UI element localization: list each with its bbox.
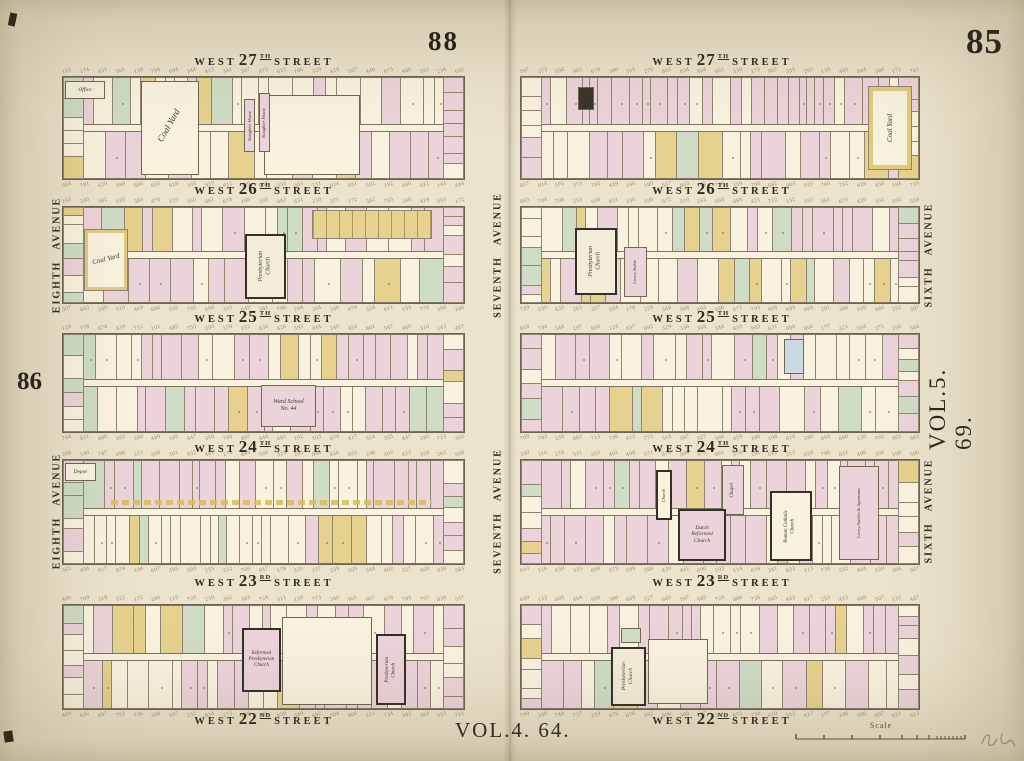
house-number: 736 xyxy=(821,566,832,575)
building-lot xyxy=(63,624,84,635)
lot-mark xyxy=(90,359,92,361)
house-number: 584 xyxy=(61,181,72,190)
building-lot xyxy=(112,661,128,708)
house-number: 766 xyxy=(821,181,832,190)
house-number: 464 xyxy=(573,595,584,604)
building-lot xyxy=(146,606,161,653)
building-lot xyxy=(816,461,828,508)
building-lot xyxy=(751,461,767,508)
building-lot xyxy=(443,664,464,678)
house-number: 262 xyxy=(115,434,126,443)
house-number: 382 xyxy=(365,197,376,206)
building-lot xyxy=(805,387,821,431)
house-number: 479 xyxy=(347,305,358,314)
building-lot xyxy=(213,335,235,379)
street-label-part: WEST xyxy=(652,444,694,455)
building-lot xyxy=(687,461,705,508)
house-number: 639 xyxy=(555,566,566,575)
lot-mark xyxy=(242,359,244,361)
building-lot xyxy=(411,132,429,178)
lot-mark xyxy=(706,232,708,234)
lot-mark xyxy=(246,542,248,544)
avenue-label-right: SIXTH AVENUE xyxy=(924,202,935,307)
building-lot xyxy=(898,224,919,239)
building-lot xyxy=(807,259,815,302)
landmark-label-line: Ward School xyxy=(273,399,303,407)
building-lot xyxy=(750,259,762,302)
building-lot xyxy=(443,551,464,564)
landmark-label: Ward SchoolNo. 44 xyxy=(273,399,303,414)
lot-mark xyxy=(437,157,439,159)
lot-mark xyxy=(736,632,738,634)
building-lot xyxy=(521,248,542,266)
building-lot xyxy=(521,529,542,542)
building-lot xyxy=(767,335,778,379)
building-lot xyxy=(443,77,464,93)
atlas-page: 88 85 86 VOL.5. 69. VOL.4. 64. Scale Off… xyxy=(0,0,1024,761)
building-lot xyxy=(565,516,586,563)
building-lot xyxy=(643,78,651,124)
building-lot xyxy=(443,508,464,523)
house-number: 739 xyxy=(909,181,920,190)
lot-mark xyxy=(750,632,752,634)
building-lot xyxy=(107,516,116,563)
building-lot xyxy=(542,387,563,431)
building-lot xyxy=(898,517,919,532)
building-lot xyxy=(361,78,382,124)
house-number: 914 xyxy=(537,181,548,190)
building-lot xyxy=(303,259,315,302)
house-number: 612 xyxy=(419,181,430,190)
building-lot xyxy=(337,335,349,379)
landmark-label-line: Coal Yard xyxy=(886,114,895,142)
building-lot xyxy=(551,516,565,563)
house-number: 447 xyxy=(909,595,920,604)
house-number: 525 xyxy=(115,197,126,206)
lot-mark xyxy=(650,157,652,159)
house-number: 817 xyxy=(803,595,814,604)
lot-mark xyxy=(139,283,141,285)
building-lot xyxy=(898,239,919,252)
house-number: 186 xyxy=(626,181,637,190)
building-lot xyxy=(443,418,464,432)
house-number: 107 xyxy=(169,711,180,720)
house-number: 485 xyxy=(768,595,779,604)
building-lot xyxy=(542,516,551,563)
house-number: 907 xyxy=(365,595,376,604)
building-lot xyxy=(673,208,685,251)
house-number: 439 xyxy=(115,324,126,333)
lot-mark xyxy=(101,542,103,544)
street-label-part: WEST xyxy=(194,716,236,727)
lot-mark xyxy=(257,542,259,544)
house-number: 518 xyxy=(909,197,920,206)
building-lot xyxy=(746,516,767,563)
street-label-part: STREET xyxy=(732,186,791,197)
house-number: 938 xyxy=(590,197,601,206)
lot-row xyxy=(84,334,445,380)
house-number: 465 xyxy=(839,67,850,76)
lot-mark xyxy=(203,687,205,689)
building-lot xyxy=(719,259,735,302)
building-lot xyxy=(791,259,807,302)
building-lot xyxy=(84,132,106,178)
house-number: 458 xyxy=(874,181,885,190)
building-lot xyxy=(383,387,396,431)
lot-mark xyxy=(659,103,661,105)
building-lot xyxy=(623,132,644,178)
building-lot xyxy=(185,387,196,431)
scan-speck xyxy=(3,730,13,742)
building-lot xyxy=(748,208,758,251)
building-lot xyxy=(219,516,227,563)
house-number: 801 xyxy=(365,324,376,333)
avenue-frontage-lots xyxy=(521,207,542,303)
building-lot xyxy=(751,132,762,178)
lot-mark xyxy=(595,487,597,489)
building-lot xyxy=(117,387,138,431)
house-number: 874 xyxy=(115,566,126,575)
lot-mark xyxy=(621,103,623,105)
building-lot xyxy=(612,78,630,124)
building-lot xyxy=(703,335,712,379)
building-lot xyxy=(63,552,84,564)
building-lot xyxy=(443,523,464,536)
building-lot xyxy=(521,699,542,709)
house-number: 235 xyxy=(555,434,566,443)
house-number: 597 xyxy=(679,595,690,604)
street-label-part: WEST xyxy=(194,314,236,325)
yellow-dashed-line xyxy=(111,500,432,505)
house-number: 729 xyxy=(519,305,530,314)
building-lot xyxy=(741,132,751,178)
house-number: 103 xyxy=(803,197,814,206)
house-number: 818 xyxy=(519,324,530,333)
house-number: 505 xyxy=(347,566,358,575)
street-label-west-27-right: WEST27THSTREET xyxy=(652,50,791,70)
house-number: 286 xyxy=(151,595,162,604)
house-number: 696 xyxy=(115,450,126,459)
building-lot xyxy=(698,387,723,431)
building-lot xyxy=(542,78,551,124)
street-label-part: STREET xyxy=(274,314,333,325)
building-lot xyxy=(63,334,84,356)
building-lot xyxy=(542,132,554,178)
landmark-label-line: Church xyxy=(628,662,635,690)
house-number: 796 xyxy=(821,450,832,459)
house-number: 553 xyxy=(590,450,601,459)
street-label-part: 23 xyxy=(239,571,258,590)
street-label-part: 25 xyxy=(239,307,258,326)
lot-mark xyxy=(317,411,319,413)
building-lot xyxy=(63,99,84,118)
lot-mark xyxy=(201,283,203,285)
building-lot xyxy=(564,661,582,708)
house-number: 285 xyxy=(419,434,430,443)
building-lot xyxy=(815,259,834,302)
house-number: 855 xyxy=(151,181,162,190)
lot-row xyxy=(84,515,445,564)
house-number: 555 xyxy=(437,197,448,206)
lot-mark xyxy=(237,103,239,105)
landmark-label-line: Presbyterian xyxy=(385,657,391,683)
house-number: 792 xyxy=(419,595,430,604)
house-number: 866 xyxy=(732,595,743,604)
house-number: 564 xyxy=(909,324,920,333)
house-number: 194 xyxy=(133,566,144,575)
building-lot xyxy=(289,516,306,563)
building-lot xyxy=(712,335,735,379)
building-lot xyxy=(521,554,542,564)
building-lot xyxy=(837,335,850,379)
lot-mark xyxy=(834,487,836,489)
house-number: 784 xyxy=(537,324,548,333)
house-number: 532 xyxy=(839,566,850,575)
house-number: 412 xyxy=(626,434,637,443)
house-number: 253 xyxy=(573,197,584,206)
house-number: 533 xyxy=(437,711,448,720)
landmark-building: Roman CatholicChurch xyxy=(770,491,812,561)
building-lot xyxy=(443,267,464,283)
building-lot xyxy=(663,387,673,431)
street-label-part: RD xyxy=(260,574,271,581)
street-label-part: STREET xyxy=(732,578,791,589)
building-lot xyxy=(582,661,595,708)
street-label-part: 27 xyxy=(697,50,716,69)
building-lot xyxy=(735,259,750,302)
house-number: 901 xyxy=(347,595,358,604)
building-lot xyxy=(850,132,865,178)
house-number: 201 xyxy=(821,305,832,314)
building-lot xyxy=(95,516,107,563)
building-lot xyxy=(590,606,608,653)
house-number: 366 xyxy=(892,566,903,575)
avenue-frontage-lots xyxy=(521,605,542,709)
house-number: 120 xyxy=(61,324,72,333)
lot-row xyxy=(542,660,900,709)
street-label-west-27-left: WEST27THSTREET xyxy=(194,50,333,70)
building-lot xyxy=(640,461,656,508)
building-lot xyxy=(84,335,96,379)
map-overlay xyxy=(621,628,641,644)
building-lot xyxy=(834,208,843,251)
lot-mark xyxy=(259,359,261,361)
house-number: 469 xyxy=(61,711,72,720)
house-number: 522 xyxy=(115,595,126,604)
house-number: 697 xyxy=(151,566,162,575)
house-number: 324 xyxy=(365,305,376,314)
house-number: 363 xyxy=(419,711,430,720)
building-lot xyxy=(542,208,563,251)
building-lot xyxy=(171,516,181,563)
street-number-row: 4067093195221722861157262393923837245111… xyxy=(62,596,465,602)
building-lot xyxy=(443,236,464,255)
house-number: 185 xyxy=(169,434,180,443)
house-number: 486 xyxy=(874,305,885,314)
house-number: 130 xyxy=(856,434,867,443)
building-lot xyxy=(63,393,84,407)
house-number: 451 xyxy=(97,67,108,76)
house-number: 340 xyxy=(329,595,340,604)
map-overlay xyxy=(784,339,804,374)
house-number: 851 xyxy=(347,181,358,190)
house-number: 362 xyxy=(61,566,72,575)
building-lot xyxy=(804,335,816,379)
building-lot xyxy=(810,606,826,653)
building-lot xyxy=(194,259,209,302)
building-lot xyxy=(211,516,219,563)
building-lot xyxy=(229,387,248,431)
street-label-part: STREET xyxy=(732,716,791,727)
landmark-label: Coal Yard xyxy=(155,108,183,145)
house-number: 600 xyxy=(519,595,530,604)
lot-mark xyxy=(739,411,741,413)
building-lot xyxy=(648,516,669,563)
building-lot xyxy=(642,335,654,379)
lot-mark xyxy=(438,687,440,689)
building-lot xyxy=(401,259,420,302)
lot-mark xyxy=(819,103,821,105)
building-lot xyxy=(311,335,322,379)
lot-mark xyxy=(93,687,95,689)
house-number: 628 xyxy=(169,181,180,190)
building-lot xyxy=(521,334,542,349)
building-lot xyxy=(831,132,850,178)
lot-mark xyxy=(728,687,730,689)
house-number: 293 xyxy=(803,67,814,76)
building-lot xyxy=(713,208,731,251)
house-number: 597 xyxy=(519,67,530,76)
house-number: 723 xyxy=(437,434,448,443)
building-lot xyxy=(212,78,233,124)
house-number: 494 xyxy=(455,181,466,190)
building-lot xyxy=(746,387,760,431)
lot-mark xyxy=(756,283,758,285)
house-number: 392 xyxy=(892,197,903,206)
building-lot xyxy=(128,661,149,708)
building-lot xyxy=(783,661,807,708)
house-number: 783 xyxy=(537,434,548,443)
building-lot xyxy=(673,387,685,431)
building-lot xyxy=(443,536,464,551)
landmark-building: Coal Yard xyxy=(869,87,911,169)
lot-mark xyxy=(869,632,871,634)
house-number: 507 xyxy=(874,595,885,604)
city-block-L3: Ward SchoolNo. 44 xyxy=(62,333,465,433)
house-number: 930 xyxy=(590,595,601,604)
building-lot xyxy=(63,605,84,624)
landmark-building: PresbyterianChurch xyxy=(376,634,406,705)
building-lot xyxy=(63,276,84,293)
building-lot xyxy=(677,132,699,178)
house-number: 556 xyxy=(555,67,566,76)
house-number: 478 xyxy=(608,711,619,720)
house-number: 806 xyxy=(347,711,358,720)
house-number: 115 xyxy=(169,595,180,604)
building-lot xyxy=(364,335,376,379)
building-lot xyxy=(161,606,183,653)
building-lot xyxy=(571,461,586,508)
building-lot xyxy=(864,259,875,302)
landmark-label: PresbyterianChurch xyxy=(385,657,398,683)
building-lot xyxy=(898,656,919,675)
building-lot xyxy=(162,335,182,379)
house-number: 609 xyxy=(626,595,637,604)
lot-mark xyxy=(234,232,236,234)
landmark-label-line: Livery Stable xyxy=(632,260,638,284)
house-number: 736 xyxy=(133,711,144,720)
building-lot xyxy=(63,356,84,379)
building-lot xyxy=(63,695,84,709)
avenue-frontage-lots xyxy=(898,334,919,432)
building-lot xyxy=(740,661,762,708)
map-overlay xyxy=(578,87,594,109)
house-number: 917 xyxy=(97,566,108,575)
house-number: 745 xyxy=(383,197,394,206)
building-lot xyxy=(443,697,464,709)
lot-mark xyxy=(825,157,827,159)
street-label-west-23-left: WEST23RDSTREET xyxy=(194,571,333,591)
building-lot xyxy=(898,460,919,483)
building-lot xyxy=(521,513,542,529)
building-lot xyxy=(521,689,542,700)
building-lot xyxy=(698,259,719,302)
building-lot xyxy=(349,335,364,379)
street-label-part: TH xyxy=(260,182,271,189)
house-number: 675 xyxy=(839,197,850,206)
building-lot xyxy=(98,387,117,431)
building-lot xyxy=(610,335,622,379)
city-block-R4: ChurchChapelDutchReformedChurchRoman Cat… xyxy=(520,459,920,565)
lot-mark xyxy=(424,687,426,689)
building-lot xyxy=(898,639,919,656)
house-number: 592 xyxy=(365,181,376,190)
building-lot xyxy=(898,397,919,414)
house-number: 172 xyxy=(455,197,466,206)
building-lot xyxy=(723,132,741,178)
landmark-label-line: Office xyxy=(78,87,91,94)
page-number-right: 85 xyxy=(966,22,1003,62)
building-lot xyxy=(542,461,562,508)
landmark-label-line: Church xyxy=(791,510,797,543)
building-lot xyxy=(143,208,153,251)
lot-mark xyxy=(347,411,349,413)
building-lot xyxy=(63,293,84,303)
lot-mark xyxy=(155,542,157,544)
house-number: 592 xyxy=(383,450,394,459)
building-lot xyxy=(723,387,732,431)
building-lot xyxy=(250,335,269,379)
landmark-label: Chapel xyxy=(730,483,736,497)
house-number: 636 xyxy=(79,711,90,720)
street-label-part: 27 xyxy=(239,50,258,69)
house-number: 271 xyxy=(874,324,885,333)
building-lot xyxy=(341,387,353,431)
house-number: 697 xyxy=(874,711,885,720)
building-lot xyxy=(789,78,800,124)
building-lot xyxy=(288,259,303,302)
house-number: 260 xyxy=(97,305,108,314)
building-lot xyxy=(443,207,464,217)
street-label-west-23-right: WEST23RDSTREET xyxy=(652,571,791,591)
building-lot xyxy=(839,387,862,431)
lot-mark xyxy=(609,487,611,489)
house-number: 139 xyxy=(821,67,832,76)
building-lot xyxy=(211,132,229,178)
landmark-building: Coal Yard xyxy=(143,89,195,162)
house-number: 886 xyxy=(133,181,144,190)
landmark-label: Coal Yard xyxy=(886,114,895,142)
